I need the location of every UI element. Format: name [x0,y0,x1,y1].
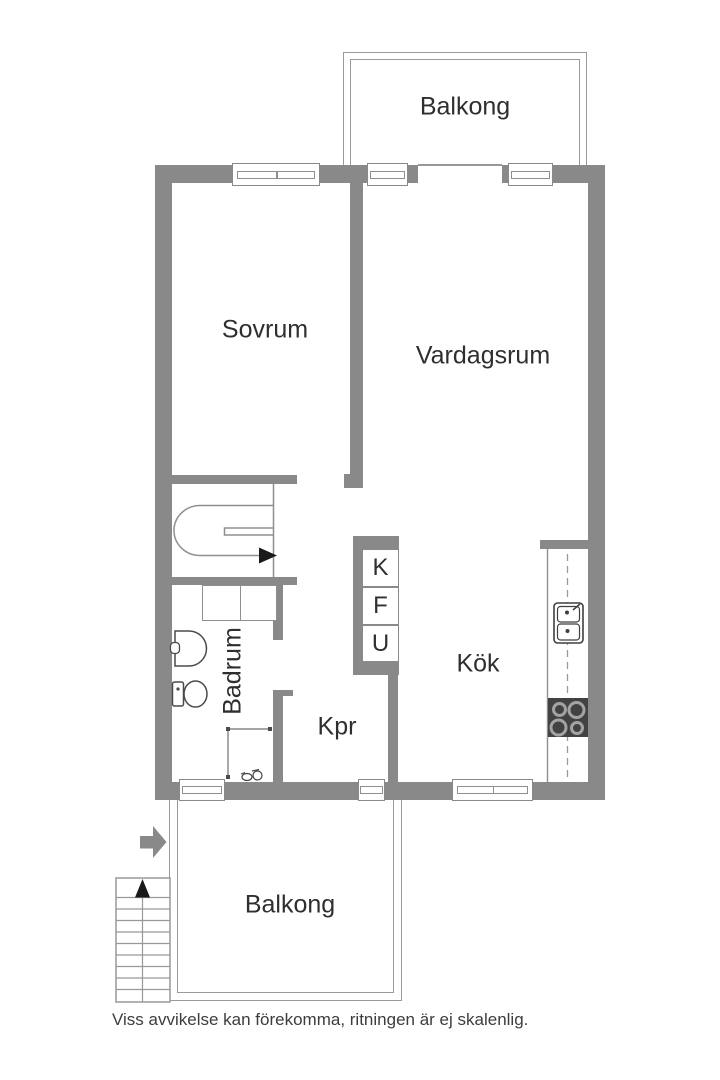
kitchen-label: Kök [456,652,499,677]
fixtures-layer [0,0,720,1080]
disclaimer-text: Viss avvikelse kan förekomma, ritningen … [112,1010,528,1030]
external-stairs-icon [116,878,170,1002]
livingroom-label: Vardagsrum [416,344,550,369]
internal-stairs-icon [174,484,277,577]
bathroom-label: Badrum [221,627,246,715]
kitchen-sink-icon [554,603,583,643]
shower-screen-icon [226,727,272,779]
entry-arrow-icon [140,826,167,858]
floorplan-page: K F U [0,0,720,1080]
bathroom-sink-icon [171,631,207,666]
closet-label: Kpr [318,715,357,740]
bedroom-label: Sovrum [222,318,308,343]
stairs-direction-arrow-icon [259,548,277,564]
floor-drain-icon [241,770,262,781]
toilet-icon [173,681,208,707]
balcony-top-label: Balkong [420,95,510,120]
stove-icon [548,698,588,737]
balcony-bottom-label: Balkong [245,893,335,918]
kitchen-counter-icon [548,549,568,782]
